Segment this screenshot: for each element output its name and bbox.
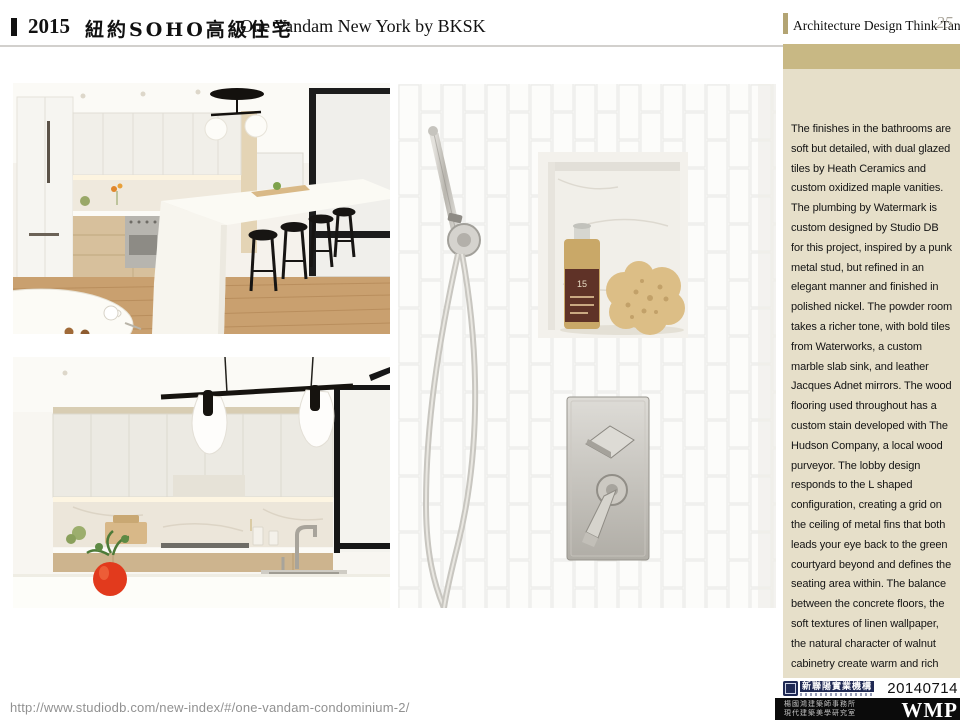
range-oven	[125, 216, 161, 268]
header-right-tick-bar	[783, 13, 788, 34]
wmp-logo: WMP	[901, 698, 958, 720]
header-rule	[0, 45, 783, 47]
shower-photo: 15	[398, 84, 776, 608]
slide: 2015 紐約SOHO高級住宅 One Vandam New York by B…	[0, 0, 960, 720]
studio-name: 現代建築美學研究室	[784, 709, 856, 718]
island-counter	[13, 576, 390, 608]
marble-backsplash	[53, 502, 333, 547]
title-tick-bar	[11, 18, 17, 36]
page-number: 25	[936, 13, 953, 33]
logo-strip: 新聯陽實業機構 20140714	[783, 679, 960, 698]
sidebar-accent-band	[783, 44, 960, 69]
bottle-label: 15	[577, 279, 587, 289]
tall-cabinets	[17, 97, 73, 279]
kitchen-range-photo	[13, 357, 390, 608]
kitchen-island-photo	[13, 83, 390, 334]
source-url: http://www.studiodb.com/new-index/#/one-…	[10, 700, 410, 715]
shower-valve-plate	[567, 397, 649, 560]
project-description-text: The finishes in the bathrooms are soft b…	[791, 120, 953, 694]
window	[334, 367, 390, 553]
agency-logo-icon	[783, 681, 798, 696]
date-label: 20140714	[887, 680, 958, 697]
firm-name: 楊國鴻建築師事務所	[784, 700, 856, 709]
firm-credit: 楊國鴻建築師事務所 現代建築美學研究室	[784, 700, 856, 718]
page-title-english: One Vandam New York by BKSK	[240, 16, 486, 37]
agency-logo: 新聯陽實業機構	[783, 681, 874, 696]
agency-logo-subtext	[800, 693, 874, 696]
series-label: Architecture Design Think Tank	[793, 18, 960, 34]
page-title-year: 2015	[28, 14, 70, 39]
agency-logo-text: 新聯陽實業機構	[800, 681, 874, 692]
footer-black-bar: 楊國鴻建築師事務所 現代建築美學研究室 WMP	[775, 698, 960, 720]
